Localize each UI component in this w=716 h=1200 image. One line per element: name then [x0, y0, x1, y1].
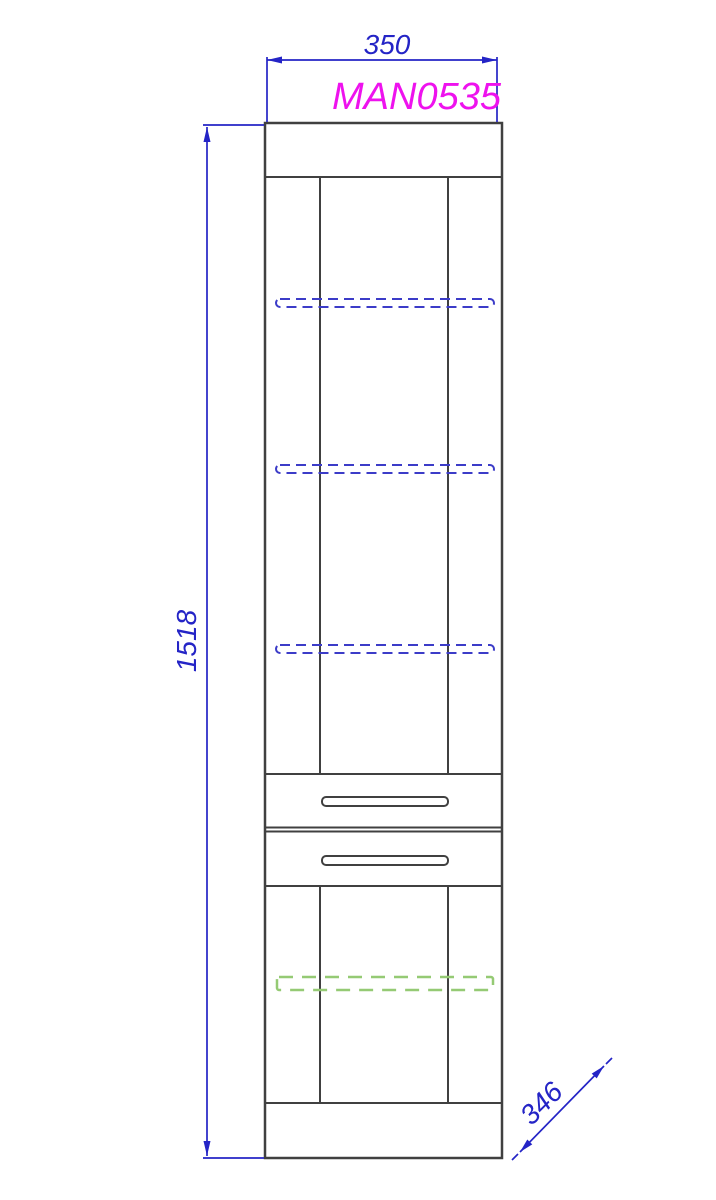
height-arrow-bottom	[204, 1141, 211, 1156]
hidden-shelf-3	[276, 645, 494, 653]
depth-extension-tick-upper	[606, 1058, 612, 1064]
hidden-shelf-1	[276, 299, 494, 307]
cabinet-outer-frame	[265, 123, 502, 1158]
depth-dimension-label: 346	[514, 1076, 569, 1131]
technical-drawing-page: 350 MAN0535 1518 346	[0, 0, 716, 1200]
drawer-1-handle	[322, 797, 448, 806]
adjustable-shelf-group	[277, 977, 493, 990]
width-dimension-label: 350	[364, 29, 411, 60]
height-dimension	[203, 125, 264, 1158]
product-code-label: MAN0535	[332, 76, 502, 118]
cabinet-technical-drawing: 350 MAN0535 1518 346	[0, 0, 716, 1200]
height-arrow-top	[204, 127, 211, 142]
adjustable-shelf	[277, 977, 493, 990]
hidden-shelves	[276, 299, 494, 653]
width-arrow-left	[267, 57, 282, 64]
width-arrow-right	[482, 57, 497, 64]
depth-extension-tick-lower	[512, 1154, 518, 1160]
hidden-shelf-2	[276, 465, 494, 473]
cabinet-outline	[265, 123, 502, 1158]
height-dimension-label: 1518	[171, 609, 202, 672]
drawer-2-handle	[322, 856, 448, 865]
